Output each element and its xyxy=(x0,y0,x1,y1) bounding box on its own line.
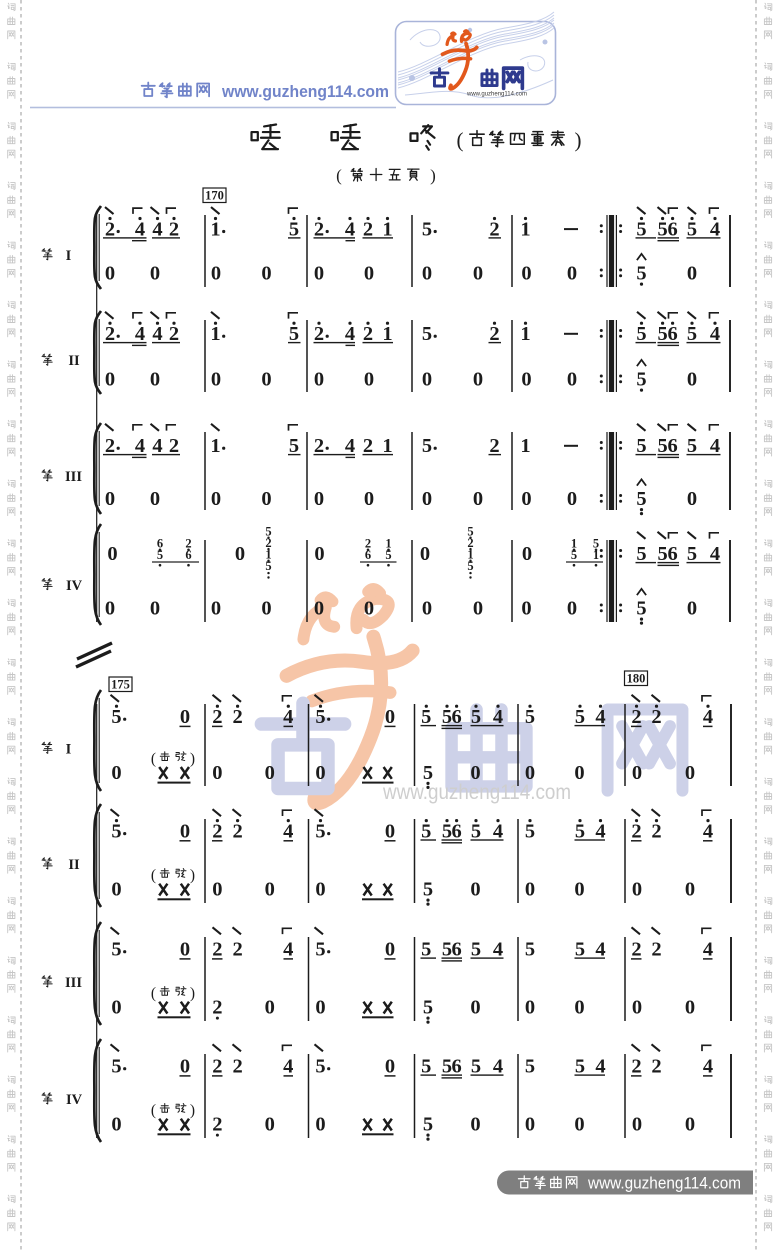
svg-text:0: 0 xyxy=(632,997,642,1019)
svg-text:4: 4 xyxy=(152,435,162,457)
svg-text:0: 0 xyxy=(685,762,695,784)
svg-text:6: 6 xyxy=(451,939,461,961)
svg-text:5: 5 xyxy=(636,435,646,457)
svg-text:4: 4 xyxy=(710,218,720,240)
svg-text:0: 0 xyxy=(180,820,190,842)
svg-text:2: 2 xyxy=(314,435,324,457)
svg-text:4: 4 xyxy=(595,1056,605,1078)
svg-text:5: 5 xyxy=(575,1056,585,1078)
svg-text:III: III xyxy=(65,975,82,991)
svg-text:4: 4 xyxy=(493,1056,503,1078)
svg-text:0: 0 xyxy=(105,369,115,391)
svg-text:4: 4 xyxy=(135,435,145,457)
svg-text:5: 5 xyxy=(423,1114,433,1136)
svg-text:4: 4 xyxy=(710,543,720,565)
svg-text:0: 0 xyxy=(574,879,584,901)
svg-text:5: 5 xyxy=(525,820,535,842)
svg-text:5: 5 xyxy=(687,218,697,240)
svg-text:0: 0 xyxy=(150,263,160,285)
svg-text:4: 4 xyxy=(345,218,355,240)
svg-text:0: 0 xyxy=(314,488,324,510)
svg-text:0: 0 xyxy=(314,369,324,391)
svg-text:5: 5 xyxy=(422,435,432,457)
svg-text:2: 2 xyxy=(169,323,179,345)
svg-text:(: ( xyxy=(336,166,342,185)
svg-text:2: 2 xyxy=(363,435,373,457)
svg-text:5: 5 xyxy=(385,548,391,562)
svg-text:6: 6 xyxy=(365,548,371,562)
svg-text:2: 2 xyxy=(105,435,115,457)
svg-text:2: 2 xyxy=(631,820,641,842)
svg-text:4: 4 xyxy=(135,218,145,240)
svg-text:1: 1 xyxy=(210,323,220,345)
svg-text:0: 0 xyxy=(314,598,324,620)
svg-text:4: 4 xyxy=(595,706,605,728)
svg-text:0: 0 xyxy=(150,369,160,391)
svg-text:5: 5 xyxy=(111,939,121,961)
svg-text:6: 6 xyxy=(185,548,191,562)
svg-text:II: II xyxy=(68,353,80,369)
svg-text:0: 0 xyxy=(265,879,275,901)
svg-text:6: 6 xyxy=(451,1056,461,1078)
svg-text:180: 180 xyxy=(627,672,646,686)
svg-text:0: 0 xyxy=(521,369,531,391)
svg-text:1: 1 xyxy=(520,323,530,345)
svg-text:0: 0 xyxy=(470,762,480,784)
svg-text:2: 2 xyxy=(105,218,115,240)
svg-text:5: 5 xyxy=(471,939,481,961)
svg-text:5: 5 xyxy=(525,939,535,961)
svg-text:0: 0 xyxy=(211,263,221,285)
svg-text:0: 0 xyxy=(261,488,271,510)
svg-text:2: 2 xyxy=(651,820,661,842)
svg-text:5: 5 xyxy=(423,879,433,901)
svg-text:0: 0 xyxy=(364,488,374,510)
svg-text:0: 0 xyxy=(422,598,432,620)
svg-text:5: 5 xyxy=(657,323,667,345)
svg-text:0: 0 xyxy=(315,762,325,784)
svg-text:0: 0 xyxy=(315,879,325,901)
svg-text:0: 0 xyxy=(567,488,577,510)
svg-text:2: 2 xyxy=(651,939,661,961)
svg-text:4: 4 xyxy=(283,706,293,728)
svg-text:2: 2 xyxy=(232,706,242,728)
svg-text:0: 0 xyxy=(422,488,432,510)
svg-text:0: 0 xyxy=(364,598,374,620)
svg-text:0: 0 xyxy=(364,263,374,285)
svg-text:0: 0 xyxy=(687,598,697,620)
svg-text:0: 0 xyxy=(470,1114,480,1136)
svg-text:0: 0 xyxy=(632,762,642,784)
svg-text:4: 4 xyxy=(493,939,503,961)
svg-text:0: 0 xyxy=(687,488,697,510)
svg-text:4: 4 xyxy=(283,820,293,842)
svg-text:2: 2 xyxy=(169,218,179,240)
svg-text:2: 2 xyxy=(212,1114,222,1136)
svg-text:0: 0 xyxy=(105,598,115,620)
svg-text:2: 2 xyxy=(489,218,499,240)
svg-text:5: 5 xyxy=(687,323,697,345)
svg-text:0: 0 xyxy=(687,369,697,391)
svg-text:5: 5 xyxy=(575,939,585,961)
svg-text:5: 5 xyxy=(636,263,646,285)
svg-text:2: 2 xyxy=(489,323,499,345)
svg-text:2: 2 xyxy=(651,1056,661,1078)
svg-text:5: 5 xyxy=(315,1056,325,1078)
svg-text:): ) xyxy=(190,1102,195,1119)
svg-text:(: ( xyxy=(151,750,156,767)
svg-text:0: 0 xyxy=(522,543,532,565)
svg-text:0: 0 xyxy=(211,488,221,510)
svg-text:175: 175 xyxy=(111,678,130,692)
svg-text:2: 2 xyxy=(212,997,222,1019)
svg-text:): ) xyxy=(190,985,195,1002)
svg-text:0: 0 xyxy=(314,263,324,285)
svg-text:0: 0 xyxy=(473,598,483,620)
svg-text:(: ( xyxy=(457,128,464,152)
svg-text:5: 5 xyxy=(422,323,432,345)
svg-text:0: 0 xyxy=(567,263,577,285)
svg-text:0: 0 xyxy=(235,543,245,565)
svg-text:I: I xyxy=(66,741,72,757)
svg-text:0: 0 xyxy=(315,1114,325,1136)
svg-text:2: 2 xyxy=(212,706,222,728)
svg-text:0: 0 xyxy=(364,369,374,391)
svg-text:0: 0 xyxy=(470,997,480,1019)
svg-text:0: 0 xyxy=(525,997,535,1019)
svg-text:5: 5 xyxy=(421,939,431,961)
svg-text:2: 2 xyxy=(314,218,324,240)
svg-text:0: 0 xyxy=(473,488,483,510)
svg-text:4: 4 xyxy=(595,820,605,842)
svg-text:5: 5 xyxy=(289,218,299,240)
svg-text:2: 2 xyxy=(232,1056,242,1078)
svg-text:0: 0 xyxy=(687,263,697,285)
svg-text:0: 0 xyxy=(211,598,221,620)
svg-text:): ) xyxy=(575,128,582,152)
svg-text:5: 5 xyxy=(525,1056,535,1078)
svg-text:170: 170 xyxy=(205,189,224,203)
svg-text:2: 2 xyxy=(105,323,115,345)
svg-text:5: 5 xyxy=(421,1056,431,1078)
svg-text:0: 0 xyxy=(567,369,577,391)
svg-text:5: 5 xyxy=(423,762,433,784)
svg-text:2: 2 xyxy=(489,435,499,457)
svg-text:4: 4 xyxy=(283,1056,293,1078)
svg-text:5: 5 xyxy=(111,706,121,728)
svg-text:0: 0 xyxy=(105,488,115,510)
svg-text:5: 5 xyxy=(657,218,667,240)
svg-text:1: 1 xyxy=(520,435,530,457)
svg-text:0: 0 xyxy=(525,1114,535,1136)
svg-text:2: 2 xyxy=(212,820,222,842)
svg-text:0: 0 xyxy=(574,997,584,1019)
svg-text:www.guzheng114.com: www.guzheng114.com xyxy=(587,1175,741,1193)
svg-text:4: 4 xyxy=(703,706,713,728)
svg-text:5: 5 xyxy=(471,706,481,728)
svg-text:0: 0 xyxy=(212,879,222,901)
svg-text:0: 0 xyxy=(265,762,275,784)
svg-text:0: 0 xyxy=(685,1114,695,1136)
svg-text:0: 0 xyxy=(105,263,115,285)
svg-text:0: 0 xyxy=(632,1114,642,1136)
svg-text:0: 0 xyxy=(420,543,430,565)
svg-text:0: 0 xyxy=(111,879,121,901)
svg-text:0: 0 xyxy=(685,879,695,901)
svg-text:2: 2 xyxy=(232,939,242,961)
svg-text:0: 0 xyxy=(261,263,271,285)
svg-text:5: 5 xyxy=(571,548,577,562)
svg-text:1: 1 xyxy=(210,218,220,240)
svg-text:0: 0 xyxy=(265,997,275,1019)
svg-text:4: 4 xyxy=(493,706,503,728)
svg-text:0: 0 xyxy=(385,820,395,842)
svg-text:0: 0 xyxy=(265,1114,275,1136)
svg-text:6: 6 xyxy=(667,435,677,457)
svg-text:5: 5 xyxy=(423,997,433,1019)
svg-text:0: 0 xyxy=(314,543,324,565)
svg-text:0: 0 xyxy=(473,369,483,391)
svg-text:): ) xyxy=(190,750,195,767)
svg-text:www.guzheng114.com: www.guzheng114.com xyxy=(466,91,527,98)
svg-text:4: 4 xyxy=(710,435,720,457)
svg-text:5: 5 xyxy=(421,820,431,842)
svg-text:0: 0 xyxy=(212,762,222,784)
svg-text:): ) xyxy=(430,166,436,185)
svg-text:4: 4 xyxy=(703,1056,713,1078)
svg-text:5: 5 xyxy=(111,1056,121,1078)
svg-text:0: 0 xyxy=(567,598,577,620)
svg-text:4: 4 xyxy=(345,323,355,345)
svg-text:5: 5 xyxy=(289,435,299,457)
svg-text:0: 0 xyxy=(111,1114,121,1136)
svg-text:2: 2 xyxy=(314,323,324,345)
svg-text:0: 0 xyxy=(261,598,271,620)
svg-text:6: 6 xyxy=(451,706,461,728)
svg-text:2: 2 xyxy=(631,706,641,728)
svg-text:4: 4 xyxy=(493,820,503,842)
svg-text:1: 1 xyxy=(382,323,392,345)
svg-text:0: 0 xyxy=(473,263,483,285)
svg-text:1: 1 xyxy=(382,435,392,457)
svg-text:0: 0 xyxy=(111,997,121,1019)
svg-text:5: 5 xyxy=(421,706,431,728)
svg-text:5: 5 xyxy=(471,820,481,842)
svg-text:4: 4 xyxy=(152,323,162,345)
svg-text:1: 1 xyxy=(382,218,392,240)
svg-text:0: 0 xyxy=(385,1056,395,1078)
svg-text:5: 5 xyxy=(289,323,299,345)
svg-text:5: 5 xyxy=(525,706,535,728)
svg-text:2: 2 xyxy=(363,218,373,240)
svg-text:5: 5 xyxy=(636,598,646,620)
svg-text:4: 4 xyxy=(152,218,162,240)
svg-text:5: 5 xyxy=(687,435,697,457)
svg-text:www.guzheng114.com: www.guzheng114.com xyxy=(382,781,571,804)
svg-text:0: 0 xyxy=(521,263,531,285)
svg-text:0: 0 xyxy=(180,939,190,961)
svg-text:5: 5 xyxy=(636,488,646,510)
svg-text:0: 0 xyxy=(521,488,531,510)
svg-text:0: 0 xyxy=(385,706,395,728)
svg-text:4: 4 xyxy=(595,939,605,961)
svg-text:0: 0 xyxy=(107,543,117,565)
svg-text:0: 0 xyxy=(315,997,325,1019)
svg-text:5: 5 xyxy=(111,820,121,842)
svg-text:4: 4 xyxy=(703,820,713,842)
svg-text:2: 2 xyxy=(631,939,641,961)
svg-text:0: 0 xyxy=(470,879,480,901)
svg-text:5: 5 xyxy=(471,1056,481,1078)
svg-text:0: 0 xyxy=(521,598,531,620)
svg-text:6: 6 xyxy=(667,543,677,565)
svg-text:0: 0 xyxy=(422,369,432,391)
svg-text:0: 0 xyxy=(574,762,584,784)
svg-text:4: 4 xyxy=(710,323,720,345)
svg-text:0: 0 xyxy=(422,263,432,285)
svg-text:2: 2 xyxy=(363,323,373,345)
svg-text:5: 5 xyxy=(636,543,646,565)
svg-text:2: 2 xyxy=(232,820,242,842)
svg-text:2: 2 xyxy=(212,939,222,961)
svg-text:5: 5 xyxy=(575,706,585,728)
svg-text:5: 5 xyxy=(687,543,697,565)
svg-text:0: 0 xyxy=(180,706,190,728)
svg-text:5: 5 xyxy=(315,820,325,842)
svg-text:5: 5 xyxy=(636,369,646,391)
svg-text:0: 0 xyxy=(632,879,642,901)
svg-text:IV: IV xyxy=(66,578,83,594)
svg-text:5: 5 xyxy=(157,548,163,562)
svg-text:0: 0 xyxy=(525,879,535,901)
svg-text:III: III xyxy=(65,469,82,485)
svg-text:4: 4 xyxy=(135,323,145,345)
svg-text:5: 5 xyxy=(315,939,325,961)
svg-text:I: I xyxy=(66,248,72,264)
svg-text:0: 0 xyxy=(150,488,160,510)
svg-text:5: 5 xyxy=(575,820,585,842)
svg-text:0: 0 xyxy=(111,762,121,784)
svg-text:(: ( xyxy=(151,867,156,884)
svg-text:1: 1 xyxy=(593,548,599,562)
svg-text:4: 4 xyxy=(703,939,713,961)
svg-text:0: 0 xyxy=(211,369,221,391)
svg-text:): ) xyxy=(190,867,195,884)
svg-text:2: 2 xyxy=(651,706,661,728)
svg-text:0: 0 xyxy=(261,369,271,391)
svg-text:0: 0 xyxy=(385,939,395,961)
svg-text:1: 1 xyxy=(210,435,220,457)
svg-text:(: ( xyxy=(151,985,156,1002)
svg-text:2: 2 xyxy=(212,1056,222,1078)
svg-text:0: 0 xyxy=(685,997,695,1019)
svg-text:0: 0 xyxy=(574,1114,584,1136)
svg-text:II: II xyxy=(68,857,80,873)
svg-text:4: 4 xyxy=(345,435,355,457)
svg-text:IV: IV xyxy=(66,1092,83,1108)
svg-text:5: 5 xyxy=(636,218,646,240)
svg-text:4: 4 xyxy=(283,939,293,961)
svg-text:5: 5 xyxy=(422,218,432,240)
svg-text:6: 6 xyxy=(667,218,677,240)
svg-text:0: 0 xyxy=(525,762,535,784)
svg-text:0: 0 xyxy=(150,598,160,620)
svg-text:5: 5 xyxy=(315,706,325,728)
svg-text:1: 1 xyxy=(520,218,530,240)
svg-text:2: 2 xyxy=(631,1056,641,1078)
svg-text:www.guzheng114.com: www.guzheng114.com xyxy=(221,83,389,101)
svg-text:5: 5 xyxy=(657,543,667,565)
svg-text:6: 6 xyxy=(451,820,461,842)
svg-text:6: 6 xyxy=(667,323,677,345)
svg-text:5: 5 xyxy=(657,435,667,457)
svg-text:(: ( xyxy=(151,1102,156,1119)
svg-text:5: 5 xyxy=(636,323,646,345)
svg-text:2: 2 xyxy=(169,435,179,457)
svg-text:0: 0 xyxy=(180,1056,190,1078)
